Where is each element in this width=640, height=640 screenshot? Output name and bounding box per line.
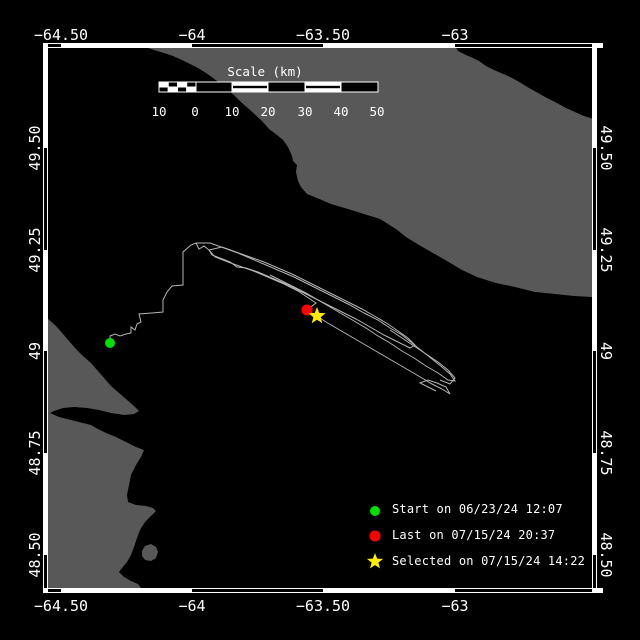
tracking-map-figure: −64.50−64−63.50−63−64.50−64−63.50−6349.5…	[0, 0, 640, 640]
start-dot-icon	[364, 499, 386, 519]
start-marker	[105, 338, 115, 348]
last-dot-icon	[364, 525, 386, 545]
legend-last-label: Last on 07/15/24 20:37	[392, 528, 555, 542]
legend-row-selected: Selected on 07/15/24 14:22	[364, 548, 585, 574]
legend-selected-label: Selected on 07/15/24 14:22	[392, 554, 585, 568]
scale-bar	[159, 82, 378, 92]
legend-row-last: Last on 07/15/24 20:37	[364, 522, 585, 548]
legend-start-label: Start on 06/23/24 12:07	[392, 502, 563, 516]
selected-star-icon	[364, 551, 386, 571]
legend: Start on 06/23/24 12:07 Last on 07/15/24…	[364, 496, 585, 574]
legend-row-start: Start on 06/23/24 12:07	[364, 496, 585, 522]
